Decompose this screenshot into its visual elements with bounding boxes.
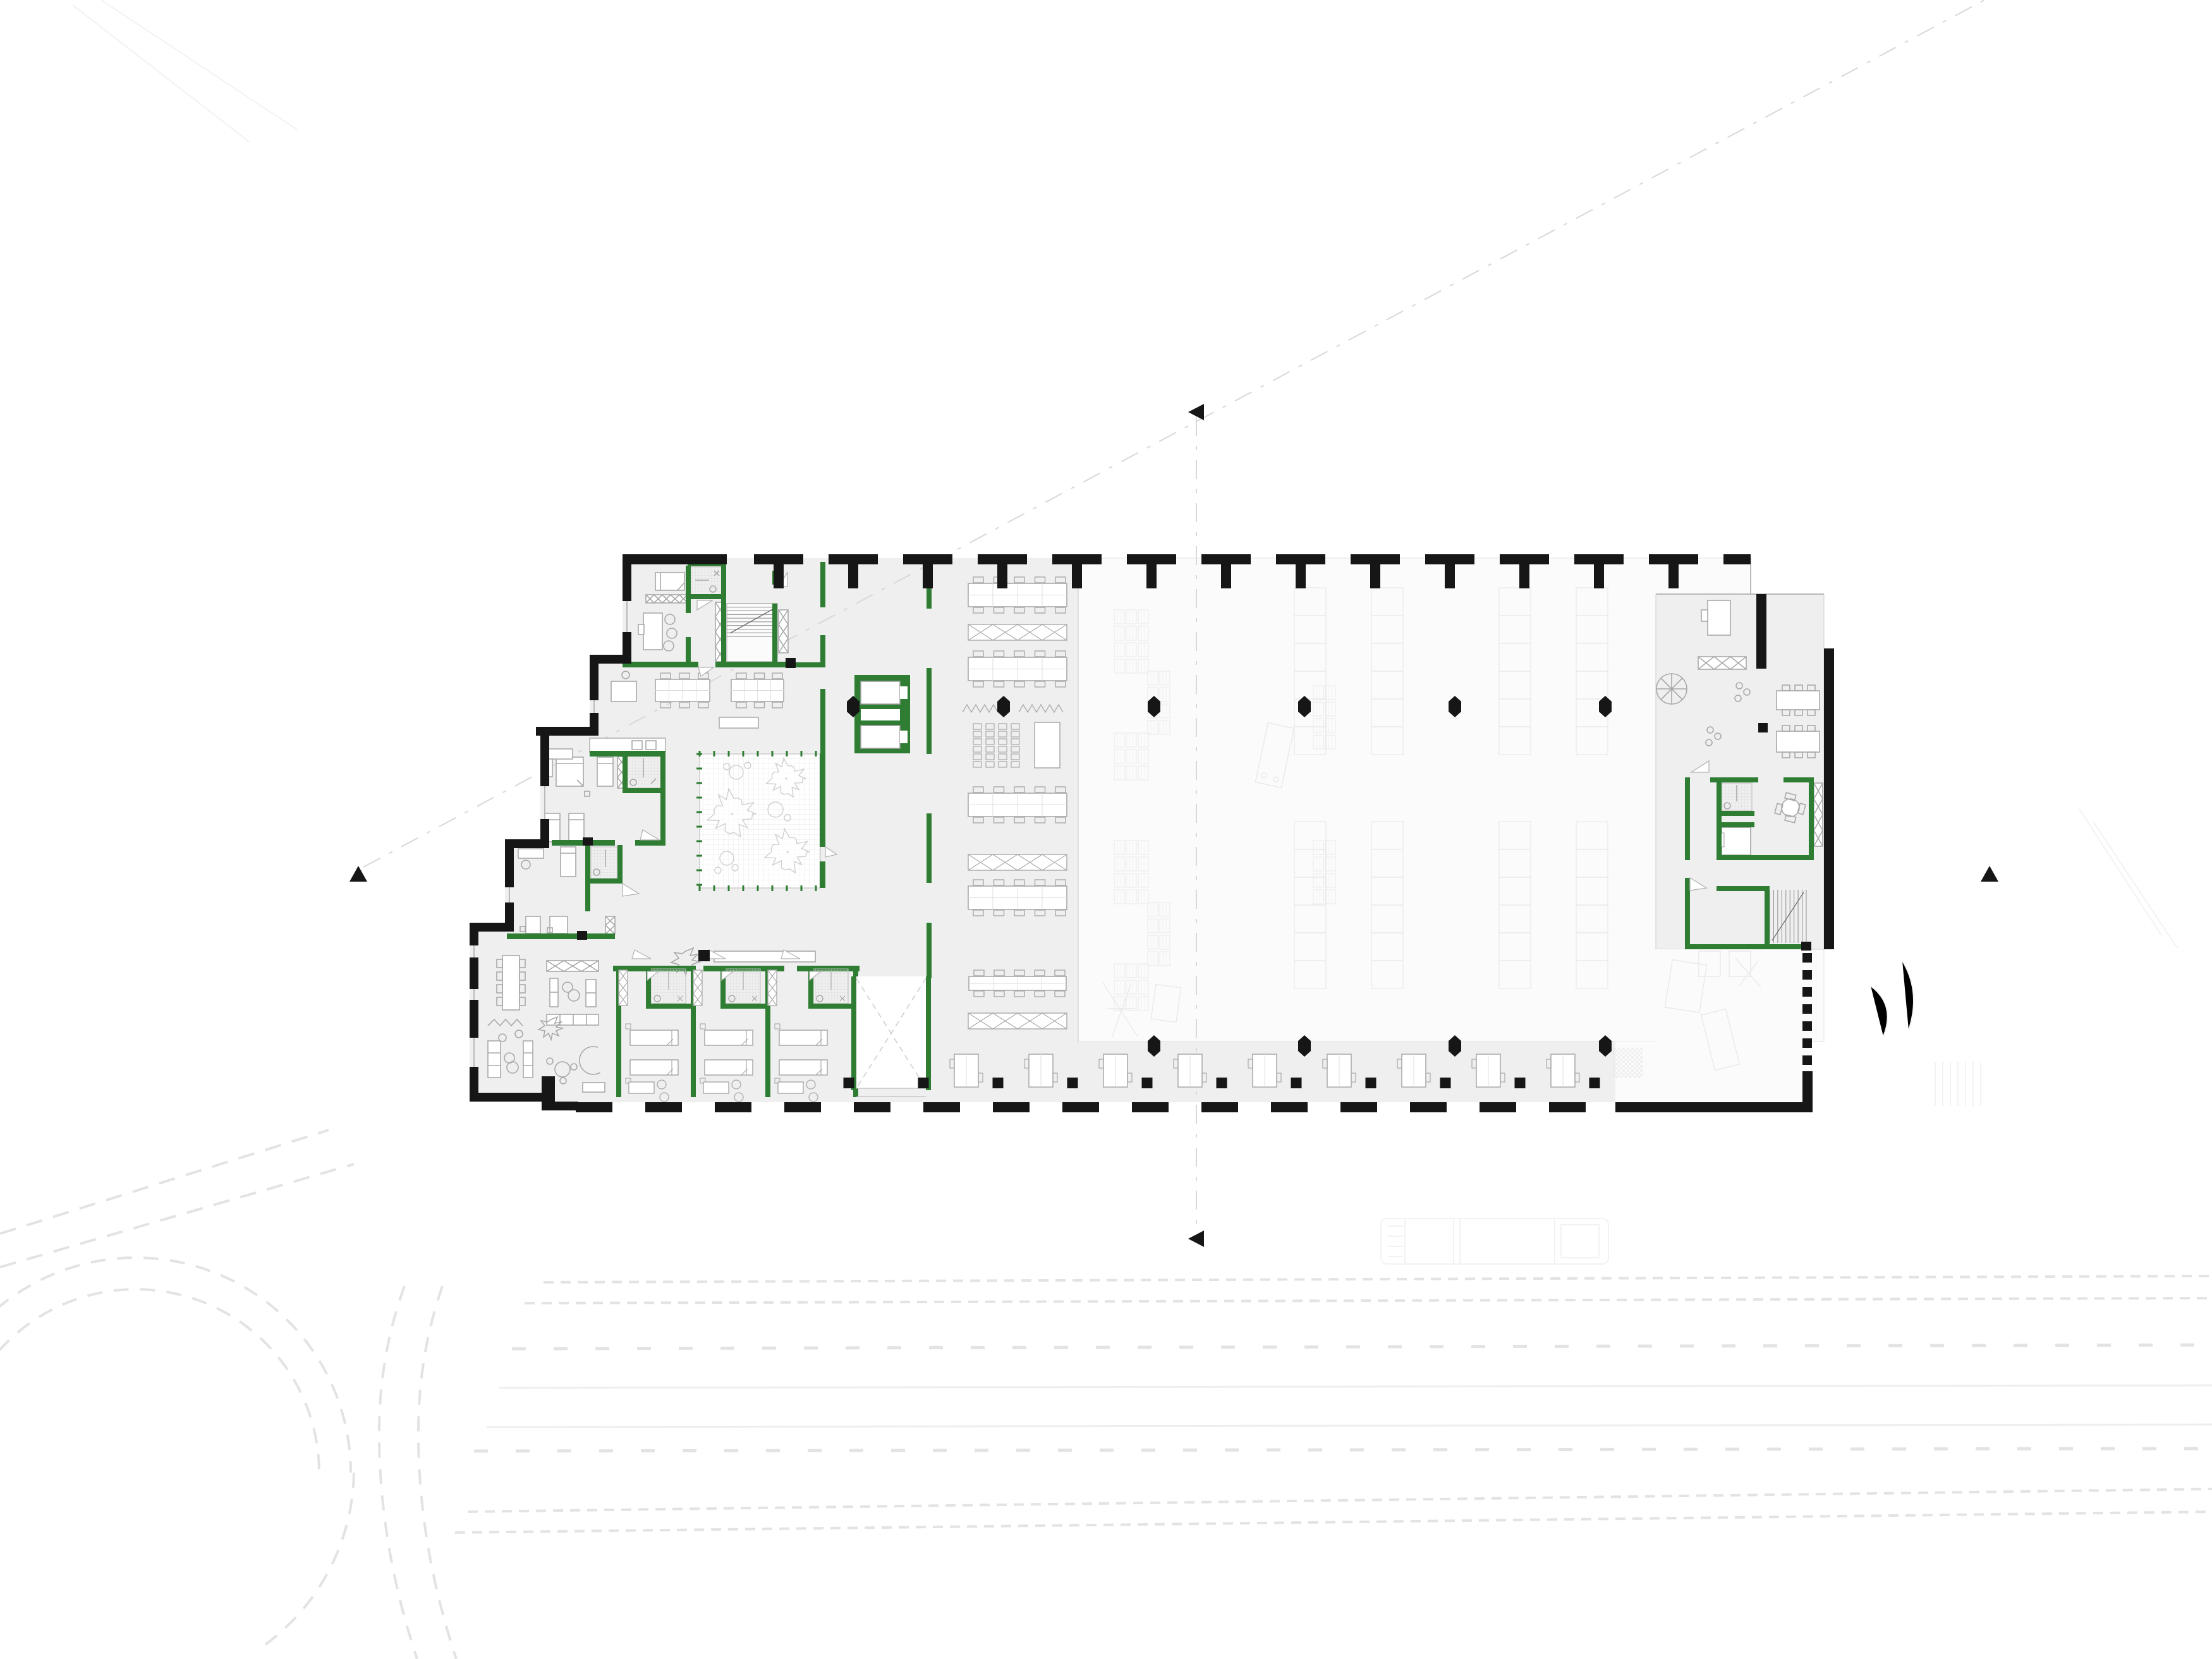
wall-pier (1589, 1078, 1600, 1088)
bathroom-wall (808, 1004, 853, 1009)
bed (556, 757, 583, 786)
bus-outline (1381, 1218, 1608, 1264)
loading-bay-floor (856, 976, 926, 1088)
bed (630, 1060, 678, 1075)
bed (597, 757, 613, 786)
room-desk (778, 1082, 803, 1093)
structural-pier (1519, 563, 1529, 588)
road-line (455, 1512, 2212, 1533)
wall-pier (1067, 1078, 1078, 1088)
structural-pier (1370, 563, 1380, 588)
structural-pier (1594, 563, 1604, 588)
bed (569, 813, 584, 842)
bed (655, 573, 684, 590)
bathroom-tiles (691, 567, 722, 595)
site-roundabout (0, 1258, 456, 1659)
stage-table (1035, 722, 1060, 768)
road-line (474, 1449, 2212, 1451)
top-wall-solid (623, 554, 727, 564)
axis-arrow-marker (1981, 866, 1998, 882)
road-line (544, 1276, 2212, 1282)
trestle-table (968, 624, 1067, 640)
road-line (499, 1385, 2212, 1388)
dotted-wall-segment (1802, 1021, 1812, 1031)
dotted-wall-segment (1802, 953, 1812, 963)
structural-pier (1221, 563, 1231, 588)
tree-trunk (785, 777, 787, 779)
wall-pier (1217, 1078, 1227, 1088)
dotted-wall-segment (1802, 970, 1812, 980)
wall-pier (918, 1078, 929, 1088)
roundabout-arc (265, 1473, 354, 1644)
wall-pier (844, 1078, 854, 1088)
bed (779, 1060, 827, 1075)
structural-pier (923, 563, 933, 588)
courtyard (696, 751, 820, 891)
roundabout-arc (0, 1258, 351, 1473)
tree-trunk (786, 851, 788, 853)
bay-wall (926, 976, 931, 1090)
wall-pier (1515, 1078, 1526, 1088)
structural-pier (1072, 563, 1082, 588)
roundabout-arc (418, 1286, 456, 1659)
floor-plan-drawing (0, 0, 2212, 1659)
desk (643, 613, 662, 650)
bed (561, 847, 576, 877)
floor-right-terrace (1656, 594, 1824, 949)
structural-pier (997, 563, 1007, 588)
bed (705, 1060, 753, 1075)
tree-trunk (731, 813, 732, 815)
bed (705, 1030, 753, 1045)
floor-plan-canvas (0, 0, 2212, 1659)
roundabout-arc (0, 1289, 319, 1473)
site-roads (0, 1130, 2212, 1533)
bed (630, 1030, 678, 1045)
trestle-table (968, 1013, 1067, 1029)
bay-wall (851, 976, 856, 1090)
road-line (525, 1298, 2212, 1303)
road-line (487, 1425, 2212, 1427)
dotted-wall-segment (1802, 1055, 1812, 1065)
dotted-wall-segment (1802, 1038, 1812, 1048)
right-wall (1824, 648, 1834, 949)
wall-pier (1291, 1078, 1302, 1088)
structural-pier (1296, 563, 1306, 588)
structural-pier (1146, 563, 1157, 588)
axis-arrow-marker (349, 866, 367, 882)
spiral-stair (1656, 674, 1687, 704)
room-desk (703, 1082, 729, 1093)
wall-pier (1366, 1078, 1376, 1088)
wall-pier (1440, 1078, 1451, 1088)
structural-pier (774, 563, 784, 588)
bathroom-wall (720, 1004, 765, 1009)
structural-pier (848, 563, 858, 588)
structural-pier (1445, 563, 1455, 588)
room-desk (629, 1082, 654, 1093)
trestle-table (968, 854, 1067, 870)
road-line (512, 1345, 2212, 1349)
roundabout-arc (379, 1286, 417, 1659)
elevator-core (854, 675, 910, 753)
counter (719, 717, 758, 728)
wall-pier (993, 1078, 1004, 1088)
dotted-wall-segment (1802, 987, 1812, 997)
road-line (468, 1489, 2212, 1512)
structural-pier (1668, 563, 1679, 588)
bed (526, 916, 540, 933)
bathroom-wall (646, 1004, 691, 1009)
bed (779, 1030, 827, 1045)
ghost-hatch-right (1871, 961, 1981, 1106)
desk-row (950, 1054, 1579, 1087)
elevator-cab (1722, 827, 1751, 855)
axis-arrow-marker (1188, 1231, 1204, 1247)
wall-pier (1142, 1078, 1153, 1088)
dotted-wall-segment (1802, 1004, 1812, 1014)
